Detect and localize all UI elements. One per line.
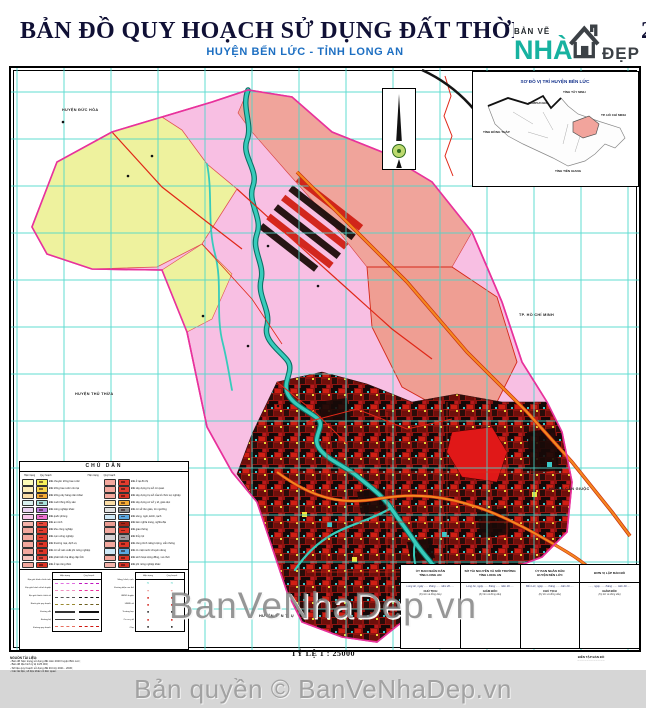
legend-swatch: [22, 507, 34, 513]
house-icon: [567, 18, 602, 64]
legend-label: Đất khu công nghiệp: [49, 529, 73, 532]
line-legend-label: Địa giới hành chính huyện: [22, 587, 51, 589]
line-legend-label: UBND xã: [105, 603, 134, 605]
legend-label: Đất nuôi trồng thủy sản: [49, 502, 76, 505]
signature-header: SỞ TÀI NGUYÊN VÀ MÔI TRƯỜNG TỈNH LONG AN: [461, 565, 520, 583]
line-legend-row: [55, 619, 99, 620]
legend-row: Đất ở tại nông thôn: [22, 562, 104, 569]
legend-swatch: [36, 548, 48, 554]
legend-swatch: [118, 521, 130, 527]
legend-swatch: [36, 486, 48, 492]
logo-text-nha: NHÀ: [514, 37, 573, 64]
legend-row: Đất cụm công nghiệp: [22, 534, 104, 541]
legend-swatch: [104, 479, 116, 485]
line-legend-row: [55, 604, 99, 605]
legend-swatch: [22, 548, 34, 554]
legend-swatch: [118, 500, 130, 506]
legend-swatch: [22, 527, 34, 533]
legend-label: Đất giao thông: [131, 529, 148, 532]
legend-row: Đất xây dựng trụ sở cơ quan: [104, 486, 186, 493]
inset-title: SƠ ĐỒ VỊ TRÍ HUYỆN BẾN LỨC: [521, 77, 591, 84]
legend-row: Đất thủy lợi: [104, 534, 186, 541]
legend-swatch: [104, 521, 116, 527]
signature-line: (Ký tên và đóng dấu): [581, 593, 638, 596]
legend-row: Đất thương mại, dịch vụ: [22, 541, 104, 548]
legend-col-header: Quy hoạch: [40, 474, 52, 477]
source-notes: NGUỒN TÀI LIỆU: - Bản đồ hiện trạng sử d…: [10, 656, 240, 674]
legend-col-header: Hiện trạng: [24, 474, 35, 477]
legend-label: Đất phát triển hạ tầng cấp tỉnh: [49, 557, 84, 560]
legend-swatch: [104, 541, 116, 547]
legend-swatch: [36, 562, 48, 568]
legend-swatch: [118, 493, 130, 499]
legend-row: Đất nông nghiệp khác: [22, 507, 104, 514]
legend-swatch: [104, 548, 116, 554]
legend-swatch: [22, 514, 34, 520]
label-duc-hoa: HUYỆN ĐỨC HÒA: [62, 107, 98, 112]
map-sheet: BẢN ĐỒ QUY HOẠCH SỬ DỤNG ĐẤT THỜI KỲ 202…: [0, 0, 646, 708]
label-tan-tru: HUYỆN TÂN TRỤ: [259, 613, 294, 618]
legend-row: Đất chuyên trồng lúa nước: [22, 479, 104, 486]
line-legend-row: ⌁⌁: [138, 589, 182, 593]
legend-label: Đất chuyên trồng lúa nước: [49, 481, 80, 484]
line-legend-header: Quy hoạch: [77, 573, 101, 579]
legend-swatch: [36, 479, 48, 485]
legend-swatch: [36, 507, 48, 513]
line-legend-row: [55, 583, 99, 584]
line-legend-label: UBND huyện: [105, 595, 134, 597]
signature-column: SỞ TÀI NGUYÊN VÀ MÔI TRƯỜNG TỈNH LONG AN…: [461, 565, 521, 648]
legend-swatch: [118, 507, 130, 513]
legend-swatch: [36, 514, 48, 520]
line-legend-label: Sông, kênh, rạch: [105, 579, 134, 581]
legend-label: Đất có mặt nước chuyên dùng: [131, 550, 166, 553]
legend-swatch: [22, 562, 34, 568]
line-legend-label: Đường sắt: [22, 611, 51, 613]
legend-row: Đất khu công nghiệp: [22, 527, 104, 534]
line-legend-row: ●●: [138, 618, 182, 622]
line-legend-row: [55, 590, 99, 591]
line-legend-label: Đường bộ: [22, 619, 51, 621]
legend-swatch: [118, 555, 130, 561]
line-legend-label: Ranh giới quy hoạch: [22, 603, 51, 605]
line-legend-row: ≈≈: [138, 581, 182, 585]
legend-col-header: Quy hoạch: [104, 474, 116, 477]
legend-label: Đất sông, ngòi, kênh, rạch: [131, 516, 161, 519]
signature-column: ỦY BAN NHÂN DÂN TỈNH LONG ANLong An, ngà…: [401, 565, 461, 648]
legend-swatch: [118, 527, 130, 533]
legend-swatch: [36, 527, 48, 533]
legend-label: Đất xây dựng trụ sở của tổ chức sự nghiệ…: [131, 495, 181, 498]
label-tphcm: TP. HỒ CHÍ MINH: [519, 312, 554, 317]
legend-row: Đất cơ sở tôn giáo, tín ngưỡng: [104, 507, 186, 514]
legend-line-symbols: Địa giới hành chính tỉnhĐịa giới hành ch…: [20, 569, 188, 632]
legend-swatch: [104, 514, 116, 520]
map-frame: HUYỆN ĐỨC HÒA TP. HỒ CHÍ MINH HUYỆN THỦ …: [9, 66, 641, 652]
line-legend-label: Địa giới hành chính xã: [22, 595, 51, 597]
legend-label: Đất cơ sở tôn giáo, tín ngưỡng: [131, 509, 167, 512]
legend-label: Đất cụm công nghiệp: [49, 536, 74, 539]
signature-header: ỦY BAN NHÂN DÂN HUYỆN BẾN LỨC: [521, 565, 580, 583]
legend-swatch: [104, 527, 116, 533]
legend-swatch: [22, 521, 34, 527]
copyright-bar: Bản quyền © BanVeNhaDep.vn: [0, 670, 646, 708]
legend-title: CHÚ DẪN: [20, 462, 188, 472]
legend-swatch: [22, 500, 34, 506]
line-legend-header: Hiện trạng: [136, 573, 160, 579]
legend-column-left: Đất chuyên trồng lúa nướcĐất trồng lúa n…: [22, 479, 104, 569]
legend-row: Đất làm nghĩa trang, nghĩa địa: [104, 520, 186, 527]
legend-swatch: [36, 541, 48, 547]
signature-header: ỦY BAN NHÂN DÂN TỈNH LONG AN: [401, 565, 460, 583]
legend-label: Đất sinh hoạt cộng đồng, vui chơi: [131, 557, 170, 560]
line-legend-label: Đường điện cao thế: [105, 587, 134, 589]
legend-row: Đất phát triển hạ tầng cấp tỉnh: [22, 555, 104, 562]
legend-row: Đất cơ sở sản xuất phi nông nghiệp: [22, 548, 104, 555]
logo-text-dep: ĐẸP: [602, 44, 640, 64]
legend-swatch: [104, 500, 116, 506]
legend-row: Đất nuôi trồng thủy sản: [22, 500, 104, 507]
signature-line: (Ký tên và đóng dấu): [522, 593, 579, 596]
legend-row: Đất giao thông: [104, 527, 186, 534]
line-legend-row: ●●: [138, 596, 182, 600]
legend-label: Đất xây dựng cơ sở y tế, giáo dục: [131, 502, 170, 505]
legend-label: Đất trồng lúa nước còn lại: [49, 488, 79, 491]
legend-swatch: [118, 562, 130, 568]
legend: CHÚ DẪN Hiện trạng Quy hoạch Hiện trạng …: [19, 461, 189, 650]
signature-table: ỦY BAN NHÂN DÂN TỈNH LONG ANLong An, ngà…: [400, 564, 640, 649]
signature-column: ỦY BAN NHÂN DÂN HUYỆN BẾN LỨCBến Lức, ng…: [521, 565, 581, 648]
legend-swatch: [36, 521, 48, 527]
line-legend-row: [55, 597, 99, 598]
legend-swatch: [36, 500, 48, 506]
legend-swatch: [104, 534, 116, 540]
editor-credit: BIÊN TẬP BẢN ĐỒ ........................…: [546, 655, 636, 662]
signature-line: (Ký tên và đóng dấu): [402, 593, 459, 596]
legend-swatch: [22, 534, 34, 540]
legend-swatch: [36, 493, 48, 499]
line-legend-label: Địa giới hành chính tỉnh: [22, 579, 51, 581]
inset-label-campuchia: CAMPUCHIA: [528, 101, 548, 105]
legend-swatch: [36, 555, 48, 561]
legend-label: Đất xây dựng trụ sở cơ quan: [131, 488, 164, 491]
line-legend-label: Đường quy hoạch: [22, 627, 51, 629]
legend-row: Đất sông, ngòi, kênh, rạch: [104, 513, 186, 520]
inset-label-tphcm: TP. HỒ CHÍ MINH: [601, 112, 627, 117]
legend-swatch: [118, 541, 130, 547]
legend-swatch: [104, 493, 116, 499]
signature-header: ĐƠN VỊ LẬP BẢN ĐỒ: [580, 565, 639, 583]
legend-label: Đất công trình năng lượng, viễn thông: [131, 543, 175, 546]
legend-row: Đất trồng cây hàng năm khác: [22, 493, 104, 500]
line-legend-row: ●●: [138, 610, 182, 614]
copyright-text: Bản quyền © BanVeNhaDep.vn: [134, 674, 512, 705]
legend-label: Đất ở tại nông thôn: [49, 564, 71, 567]
legend-label: Đất làm nghĩa trang, nghĩa địa: [131, 522, 166, 525]
legend-swatch: [118, 479, 130, 485]
inset-label-tiengiang: TỈNH TIỀN GIANG: [555, 168, 582, 173]
legend-swatch: [22, 493, 34, 499]
signature-line: (Ký tên và đóng dấu): [462, 593, 519, 596]
legend-label: Đất cơ sở sản xuất phi nông nghiệp: [49, 550, 90, 553]
legend-row: Đất trồng lúa nước còn lại: [22, 486, 104, 493]
legend-row: Đất có mặt nước chuyên dùng: [104, 548, 186, 555]
legend-swatch: [118, 514, 130, 520]
line-legend-header: Quy hoạch: [160, 573, 184, 579]
legend-label: Đất quốc phòng: [49, 516, 67, 519]
legend-swatch: [36, 534, 48, 540]
legend-swatch: [104, 555, 116, 561]
legend-swatch: [22, 486, 34, 492]
page-title: BẢN ĐỒ QUY HOẠCH SỬ DỤNG ĐẤT THỜI KỲ 202…: [20, 18, 590, 45]
inset-label-tayninh: TỈNH TÂY NINH: [563, 89, 586, 94]
legend-row: Đất xây dựng trụ sở của tổ chức sự nghiệ…: [104, 493, 186, 500]
line-legend-header: Hiện trạng: [53, 573, 77, 579]
line-legend-row: [55, 611, 99, 613]
line-legend-label: Cơ sở y tế: [105, 619, 134, 621]
legend-swatch: [118, 534, 130, 540]
legend-label: Đất nông nghiệp khác: [49, 509, 74, 512]
inset-map: SƠ ĐỒ VỊ TRÍ HUYỆN BẾN LỨC CAMPUCHIA TỈN…: [472, 71, 639, 187]
legend-swatch: [118, 486, 130, 492]
north-arrow: [382, 88, 416, 170]
legend-label: Đất trồng cây hàng năm khác: [49, 495, 83, 498]
legend-swatch: [104, 562, 116, 568]
legend-row: Đất sinh hoạt cộng đồng, vui chơi: [104, 555, 186, 562]
legend-row: Đất phi nông nghiệp khác: [104, 562, 186, 569]
legend-swatch: [118, 548, 130, 554]
legend-col-header: Hiện trạng: [88, 474, 99, 477]
legend-row: Đất ở tại đô thị: [104, 479, 186, 486]
source-note-line: - Các tài liệu, số liệu khác có liên qua…: [10, 670, 240, 673]
legend-label: Đất phi nông nghiệp khác: [131, 564, 160, 567]
legend-swatch: [104, 486, 116, 492]
legend-swatch: [22, 479, 34, 485]
legend-label: Đất an ninh: [49, 522, 62, 525]
legend-row: Đất an ninh: [22, 520, 104, 527]
label-can-giuoc: HUYỆN CẦN GIUỘC: [549, 486, 590, 491]
line-legend-row: ●●: [138, 603, 182, 607]
legend-swatch: [22, 555, 34, 561]
legend-swatch: [22, 541, 34, 547]
brand-logo: BẢN VẼ NHÀ ĐẸP: [514, 10, 640, 64]
legend-column-right: Đất ở tại đô thịĐất xây dựng trụ sở cơ q…: [104, 479, 186, 569]
legend-label: Đất thủy lợi: [131, 536, 144, 539]
line-legend-label: Trường học: [105, 611, 134, 613]
legend-swatch: [104, 507, 116, 513]
line-legend-label: Chợ: [105, 627, 134, 629]
legend-row: Đất quốc phòng: [22, 513, 104, 520]
label-thu-thua: HUYỆN THỦ THỪA: [75, 391, 113, 396]
legend-row: Đất xây dựng cơ sở y tế, giáo dục: [104, 500, 186, 507]
inset-label-dongthap: TỈNH ĐỒNG THÁP: [483, 129, 510, 134]
page-subtitle: HUYỆN BẾN LỨC - TỈNH LONG AN: [20, 46, 590, 58]
legend-label: Đất thương mại, dịch vụ: [49, 543, 77, 546]
line-legend-row: ●●: [138, 625, 182, 629]
legend-label: Đất ở tại đô thị: [131, 481, 148, 484]
legend-row: Đất công trình năng lượng, viễn thông: [104, 541, 186, 548]
line-legend-row: [55, 626, 99, 627]
signature-column: ĐƠN VỊ LẬP BẢN ĐỒ......, ngày ...... thá…: [580, 565, 639, 648]
